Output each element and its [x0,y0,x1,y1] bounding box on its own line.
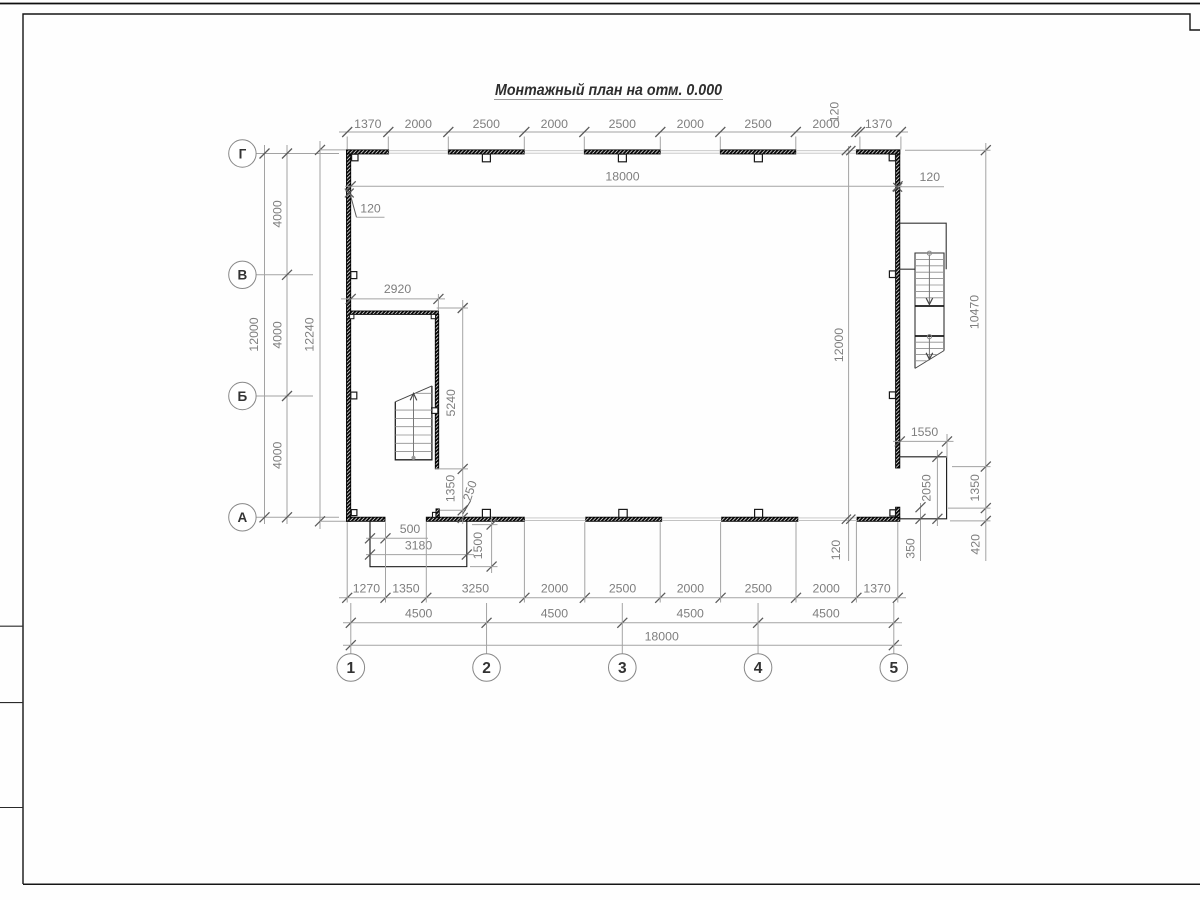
svg-text:2500: 2500 [609,117,637,131]
svg-text:3250: 3250 [462,582,490,596]
svg-text:2500: 2500 [473,117,501,131]
svg-text:4500: 4500 [541,606,569,620]
svg-text:2050: 2050 [920,474,934,502]
svg-text:4500: 4500 [812,606,840,620]
svg-text:18000: 18000 [645,629,679,643]
svg-text:2000: 2000 [541,582,569,596]
svg-text:12000: 12000 [832,328,846,362]
svg-text:1350: 1350 [444,475,458,503]
svg-text:1350: 1350 [392,582,420,596]
svg-text:2: 2 [482,660,491,677]
svg-text:420: 420 [969,534,983,555]
svg-text:1500: 1500 [471,532,485,560]
svg-text:1350: 1350 [968,474,982,502]
svg-text:Г: Г [239,146,247,161]
svg-text:4: 4 [754,660,763,677]
svg-text:В: В [238,268,248,283]
svg-text:4000: 4000 [270,321,284,349]
svg-text:2500: 2500 [609,582,637,596]
svg-text:4000: 4000 [270,441,284,469]
svg-text:1370: 1370 [863,582,891,596]
svg-text:5240: 5240 [444,389,458,417]
svg-text:120: 120 [920,170,941,184]
svg-text:12000: 12000 [247,317,261,351]
svg-text:10470: 10470 [967,295,981,329]
svg-text:120: 120 [828,102,842,123]
svg-text:4500: 4500 [405,606,433,620]
svg-text:18000: 18000 [605,169,639,183]
svg-text:1370: 1370 [865,117,893,131]
svg-text:Монтажный план на отм. 0.000: Монтажный план на отм. 0.000 [495,82,722,99]
svg-text:2920: 2920 [384,282,412,296]
svg-text:2000: 2000 [813,582,841,596]
svg-text:2500: 2500 [744,117,772,131]
svg-text:3180: 3180 [405,538,433,552]
svg-text:Б: Б [238,389,248,404]
svg-text:3: 3 [618,660,627,677]
svg-text:120: 120 [829,540,843,561]
svg-text:4500: 4500 [677,606,705,620]
svg-text:350: 350 [903,538,917,559]
svg-text:500: 500 [400,522,421,536]
svg-text:1270: 1270 [353,582,381,596]
svg-text:12240: 12240 [302,317,316,351]
svg-text:2000: 2000 [541,117,569,131]
svg-text:2500: 2500 [745,582,773,596]
svg-text:1370: 1370 [354,117,382,131]
svg-text:4000: 4000 [270,200,284,228]
svg-text:5: 5 [889,660,898,677]
svg-text:2000: 2000 [677,582,705,596]
svg-text:2000: 2000 [677,117,705,131]
svg-text:2000: 2000 [405,117,433,131]
svg-text:1550: 1550 [911,425,939,439]
svg-text:1: 1 [346,660,355,677]
svg-text:120: 120 [360,202,381,216]
svg-text:А: А [238,510,248,525]
